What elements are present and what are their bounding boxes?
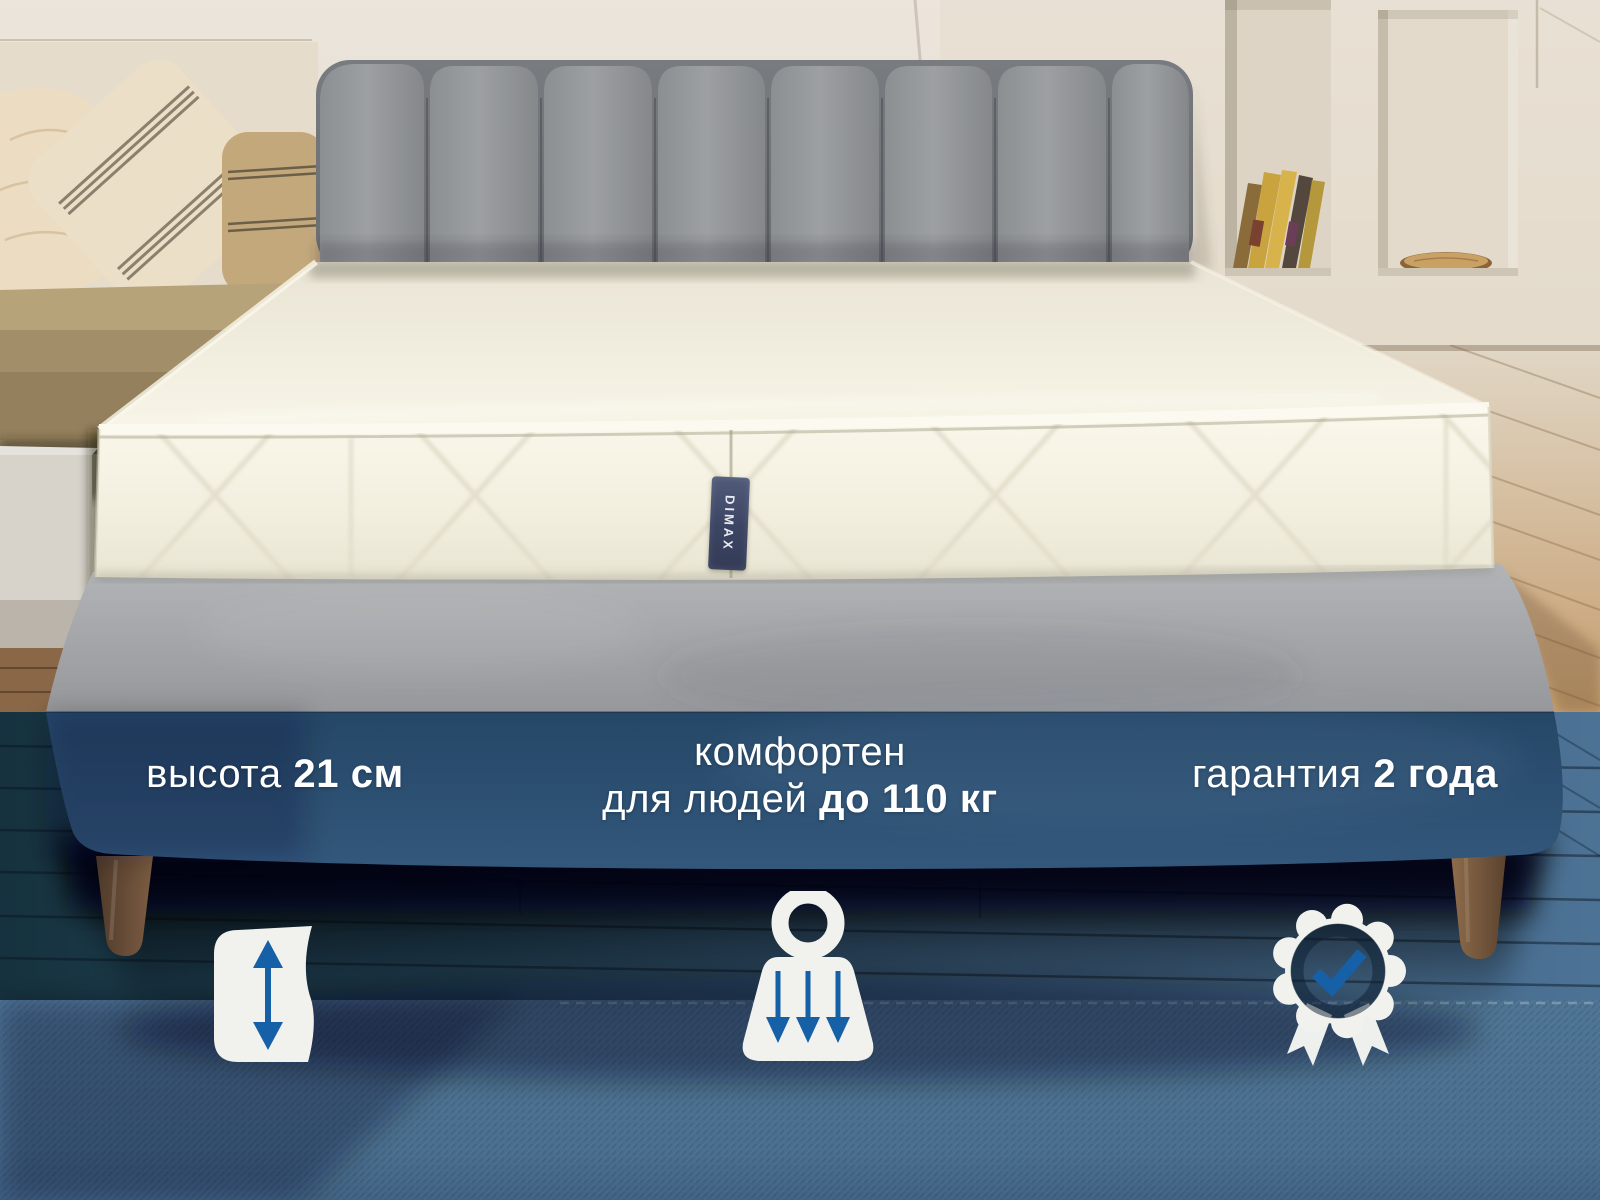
promo-banner: DIMAX высота 21 см комфортен для людей д…	[0, 0, 1600, 1200]
comfort-line2: для людей до 110 кг	[550, 776, 1050, 823]
headboard	[316, 60, 1212, 270]
height-value: 21 см	[293, 752, 403, 796]
height-label: высота	[146, 752, 282, 796]
bed-base	[46, 563, 1563, 869]
comfort-line1: комфортен	[550, 729, 1050, 776]
warranty-value: 2 года	[1373, 752, 1498, 796]
down-arrows-icon	[766, 971, 850, 1043]
mattress-height-icon	[208, 924, 340, 1066]
brand-tag: DIMAX	[708, 476, 750, 571]
comfort-line2-value: до 110 кг	[819, 777, 998, 821]
warranty-badge-icon	[1258, 893, 1418, 1073]
warranty-stat: гарантия 2 года	[1120, 751, 1570, 798]
weight-capacity-icon	[722, 891, 894, 1071]
comfort-line2-label: для людей	[602, 777, 807, 821]
warranty-label: гарантия	[1192, 752, 1362, 796]
comfort-stat: комфортен для людей до 110 кг	[550, 729, 1050, 823]
height-stat: высота 21 см	[120, 751, 430, 798]
brand-tag-text: DIMAX	[720, 495, 737, 552]
